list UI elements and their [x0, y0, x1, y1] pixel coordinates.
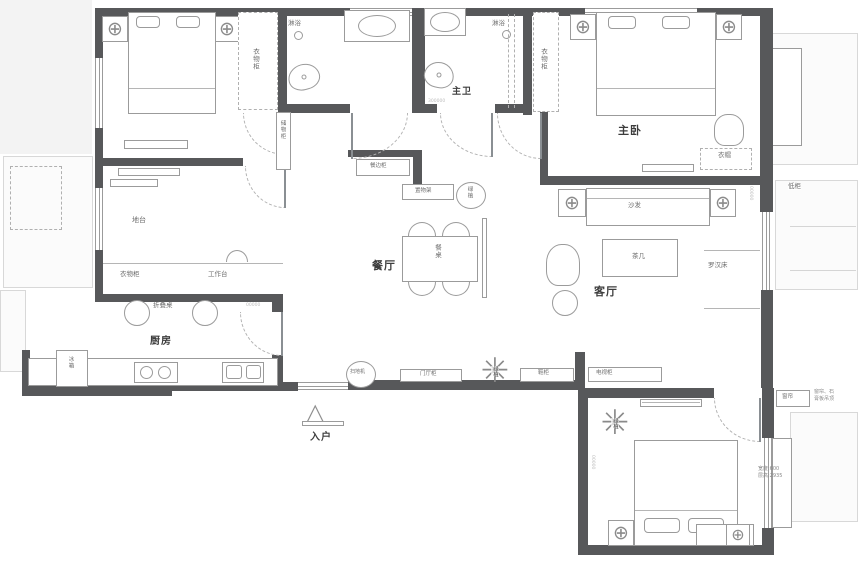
desk-chair: [226, 250, 248, 262]
right-side-area-outline: [775, 180, 858, 290]
worktop-label: 工作台: [208, 271, 228, 278]
dimension-text: 00000: [590, 455, 595, 469]
room-label-living: 客厅: [594, 283, 618, 299]
room-label-kitchen: 厨房: [150, 332, 172, 347]
toilet-bath1: [285, 60, 323, 93]
ac-vent-line: [642, 402, 700, 403]
stove-burner-icon: [158, 366, 171, 379]
platform-cabinet: [110, 179, 158, 187]
tea-table-label: 茶几: [632, 253, 645, 260]
door-arc-bedroom2: [714, 398, 760, 442]
kitchen-stool: [192, 300, 218, 326]
ceiling-note: 窗帘、石 膏板吊顶: [814, 389, 834, 402]
dining-table-label: 餐桌: [434, 244, 441, 259]
shower-label-bath1: 淋浴: [288, 20, 301, 27]
sink-basin-bath1: [358, 15, 396, 37]
floor-plan: ⊕ ⊕ 衣物柜 淋浴 储物柜 淋浴 主卫 衣物柜 ⊕ ⊕ 主卧 衣帽 00000…: [0, 0, 860, 564]
bay-window-bedroom2: [764, 438, 772, 528]
dimension-text: 300000: [428, 99, 445, 104]
bottom-right-outside-outline: [790, 412, 858, 522]
bay-note-line1: 宽度:600: [758, 466, 782, 473]
side-table-round-icon: ⊕: [710, 189, 736, 217]
plant-dining-label: 绿植: [466, 186, 472, 199]
platform-room-divider-line: [103, 263, 283, 264]
nightstand-round-table-icon: ⊕: [716, 14, 742, 40]
room-label-entry: 入户: [310, 428, 332, 443]
wall-bedroom2-top: [578, 388, 714, 398]
kitchen-stool: [124, 300, 150, 326]
right-side-shelf-line-1: [790, 226, 856, 227]
right-side-shelf-line-2: [790, 270, 856, 271]
bay-window-depth: [772, 438, 792, 528]
wall-bedroom2-left: [578, 398, 588, 555]
wall-bedroom1-platform-divider: [95, 158, 243, 166]
wall-kitchen-right-1: [272, 294, 283, 312]
shoe-cabinet-label: 鞋柜: [538, 370, 549, 376]
door-leaf-master: [540, 113, 542, 159]
wall-bath1-bottom-stub: [412, 104, 437, 113]
wall-bedroom2-corner: [762, 388, 774, 398]
platform-label: 地台: [132, 216, 146, 224]
plant-entry-label: 绿植: [491, 366, 499, 377]
round-side-table: [552, 290, 578, 316]
blanket-line: [597, 88, 715, 89]
sofa-back-line: [587, 198, 709, 199]
shower-head-icon: [294, 31, 303, 40]
nightstand-round-table-icon: ⊕: [214, 16, 240, 42]
hall-cabinet-label: 门厅柜: [420, 371, 437, 377]
shower-label-bath2: 淋浴: [492, 20, 505, 27]
door-arc-master: [497, 113, 541, 159]
nightstand-round-table-icon: ⊕: [726, 524, 750, 546]
toilet-drain: [301, 74, 307, 80]
folding-table-label: 折叠桌: [153, 302, 173, 309]
dining-table: [402, 236, 478, 282]
pillow: [176, 16, 200, 28]
armchair-master: [714, 114, 744, 146]
entry-mat: [302, 421, 344, 426]
wall-kitchen-top: [95, 294, 272, 302]
bay-window-note: 宽度:600 层高:2935: [758, 466, 782, 479]
blanket-line: [635, 510, 737, 511]
door-leaf-platform-room: [284, 166, 286, 208]
left-balcony-dashed-area: [10, 166, 62, 230]
sofa: [586, 188, 710, 226]
wardrobe-master-label: 衣物柜: [540, 48, 547, 71]
dining-chair: [408, 282, 436, 296]
low-cabinet-label: 低柜: [788, 183, 801, 190]
wardrobe-bedroom1-label: 衣物柜: [252, 48, 259, 71]
nightstand-round-table-icon: ⊕: [570, 14, 596, 40]
blanket-line: [129, 88, 215, 89]
door-leaf-bedroom2: [759, 398, 761, 442]
dimension-text: 00000: [748, 186, 753, 200]
ceiling-note-line2: 膏板吊顶: [814, 396, 834, 403]
room-label-master-bedroom: 主卧: [618, 122, 642, 138]
platform-shelf: [118, 168, 180, 176]
dining-chair: [442, 282, 470, 296]
shelf-unit-label: 置物架: [415, 188, 432, 194]
outside-fill-top-left: [0, 0, 92, 154]
fridge-label: 冰箱: [67, 356, 73, 369]
daybed-line-top: [704, 250, 760, 251]
shower-glass-line: [508, 14, 509, 108]
dining-chair: [408, 222, 436, 236]
ceiling-note-line1: 窗帘、石: [814, 389, 834, 396]
door-arc-bath2: [440, 113, 492, 157]
sofa-label: 沙发: [628, 202, 641, 209]
stove-burner-icon: [140, 366, 153, 379]
bed-end-bench: [124, 140, 188, 149]
window-left-platform-room: [95, 188, 103, 250]
door-arc-kitchen: [240, 312, 282, 356]
tv-cabinet-label: 电视柜: [596, 370, 613, 376]
door-leaf-bath2: [491, 113, 493, 157]
pillow: [136, 16, 160, 28]
wall-left-4: [95, 250, 103, 294]
wall-bedroom2-right-2: [762, 528, 774, 555]
curtain-box-label: 窗帘: [782, 394, 793, 400]
wall-bath1-left: [278, 8, 287, 108]
door-leaf-bath1: [351, 113, 353, 159]
toilet-drain: [436, 72, 442, 78]
plant-bedroom2-label: 绿植: [611, 418, 619, 429]
window-living-right: [762, 212, 770, 290]
wall-bedroom2-bottom: [578, 545, 774, 555]
room-label-dining: 餐厅: [372, 257, 396, 273]
daybed-line-bottom: [704, 308, 760, 309]
pillow: [662, 16, 690, 29]
wall-left-3: [95, 166, 103, 188]
coat-area-label: 衣帽: [718, 152, 731, 159]
dining-chair: [442, 222, 470, 236]
pillow: [608, 16, 636, 29]
wall-living-right-lower: [761, 290, 773, 388]
corridor-storage-label: 储物柜: [279, 120, 285, 140]
shower-glass-line: [514, 14, 515, 108]
side-table-round-icon: ⊕: [558, 189, 586, 217]
wall-bath2-right: [523, 8, 532, 115]
nightstand-round-table-icon: ⊕: [102, 16, 128, 42]
screen-partition: [482, 218, 487, 298]
armchair-living: [546, 244, 580, 286]
entry-threshold: [298, 382, 348, 390]
top-right-balcony-cabinet: [770, 48, 802, 146]
plant-bedroom2: ✳ 绿植: [596, 404, 634, 442]
wall-bedroom2-right-1: [762, 398, 774, 438]
door-leaf-kitchen: [281, 312, 283, 356]
ac-vent: [640, 399, 702, 407]
dimension-text: 00000: [246, 303, 260, 308]
sink-bowl: [246, 365, 261, 379]
room-label-master-bath: 主卫: [452, 84, 472, 97]
bay-note-line2: 层高:2935: [758, 473, 782, 480]
sink-basin-bath2: [430, 12, 460, 32]
niche-sideboard-label: 餐边柜: [370, 163, 387, 169]
shower-head-icon: [502, 30, 511, 39]
bench-master: [642, 164, 694, 172]
daybed-label: 罗汉床: [708, 262, 728, 269]
wall-living-master-divider: [540, 176, 762, 185]
door-arc-platform-room: [245, 166, 285, 208]
wall-master-right: [760, 8, 773, 212]
window-left-bedroom: [95, 58, 103, 128]
wall-tv-stub: [575, 352, 585, 388]
sink-bowl: [226, 365, 242, 379]
pillow: [644, 518, 680, 533]
nightstand-round-table-icon: ⊕: [608, 520, 634, 546]
robot-vacuum-label: 扫地机: [350, 370, 365, 376]
wardrobe-platform-label: 衣物柜: [120, 271, 140, 278]
plant-entry: ✳ 绿植: [478, 354, 512, 388]
